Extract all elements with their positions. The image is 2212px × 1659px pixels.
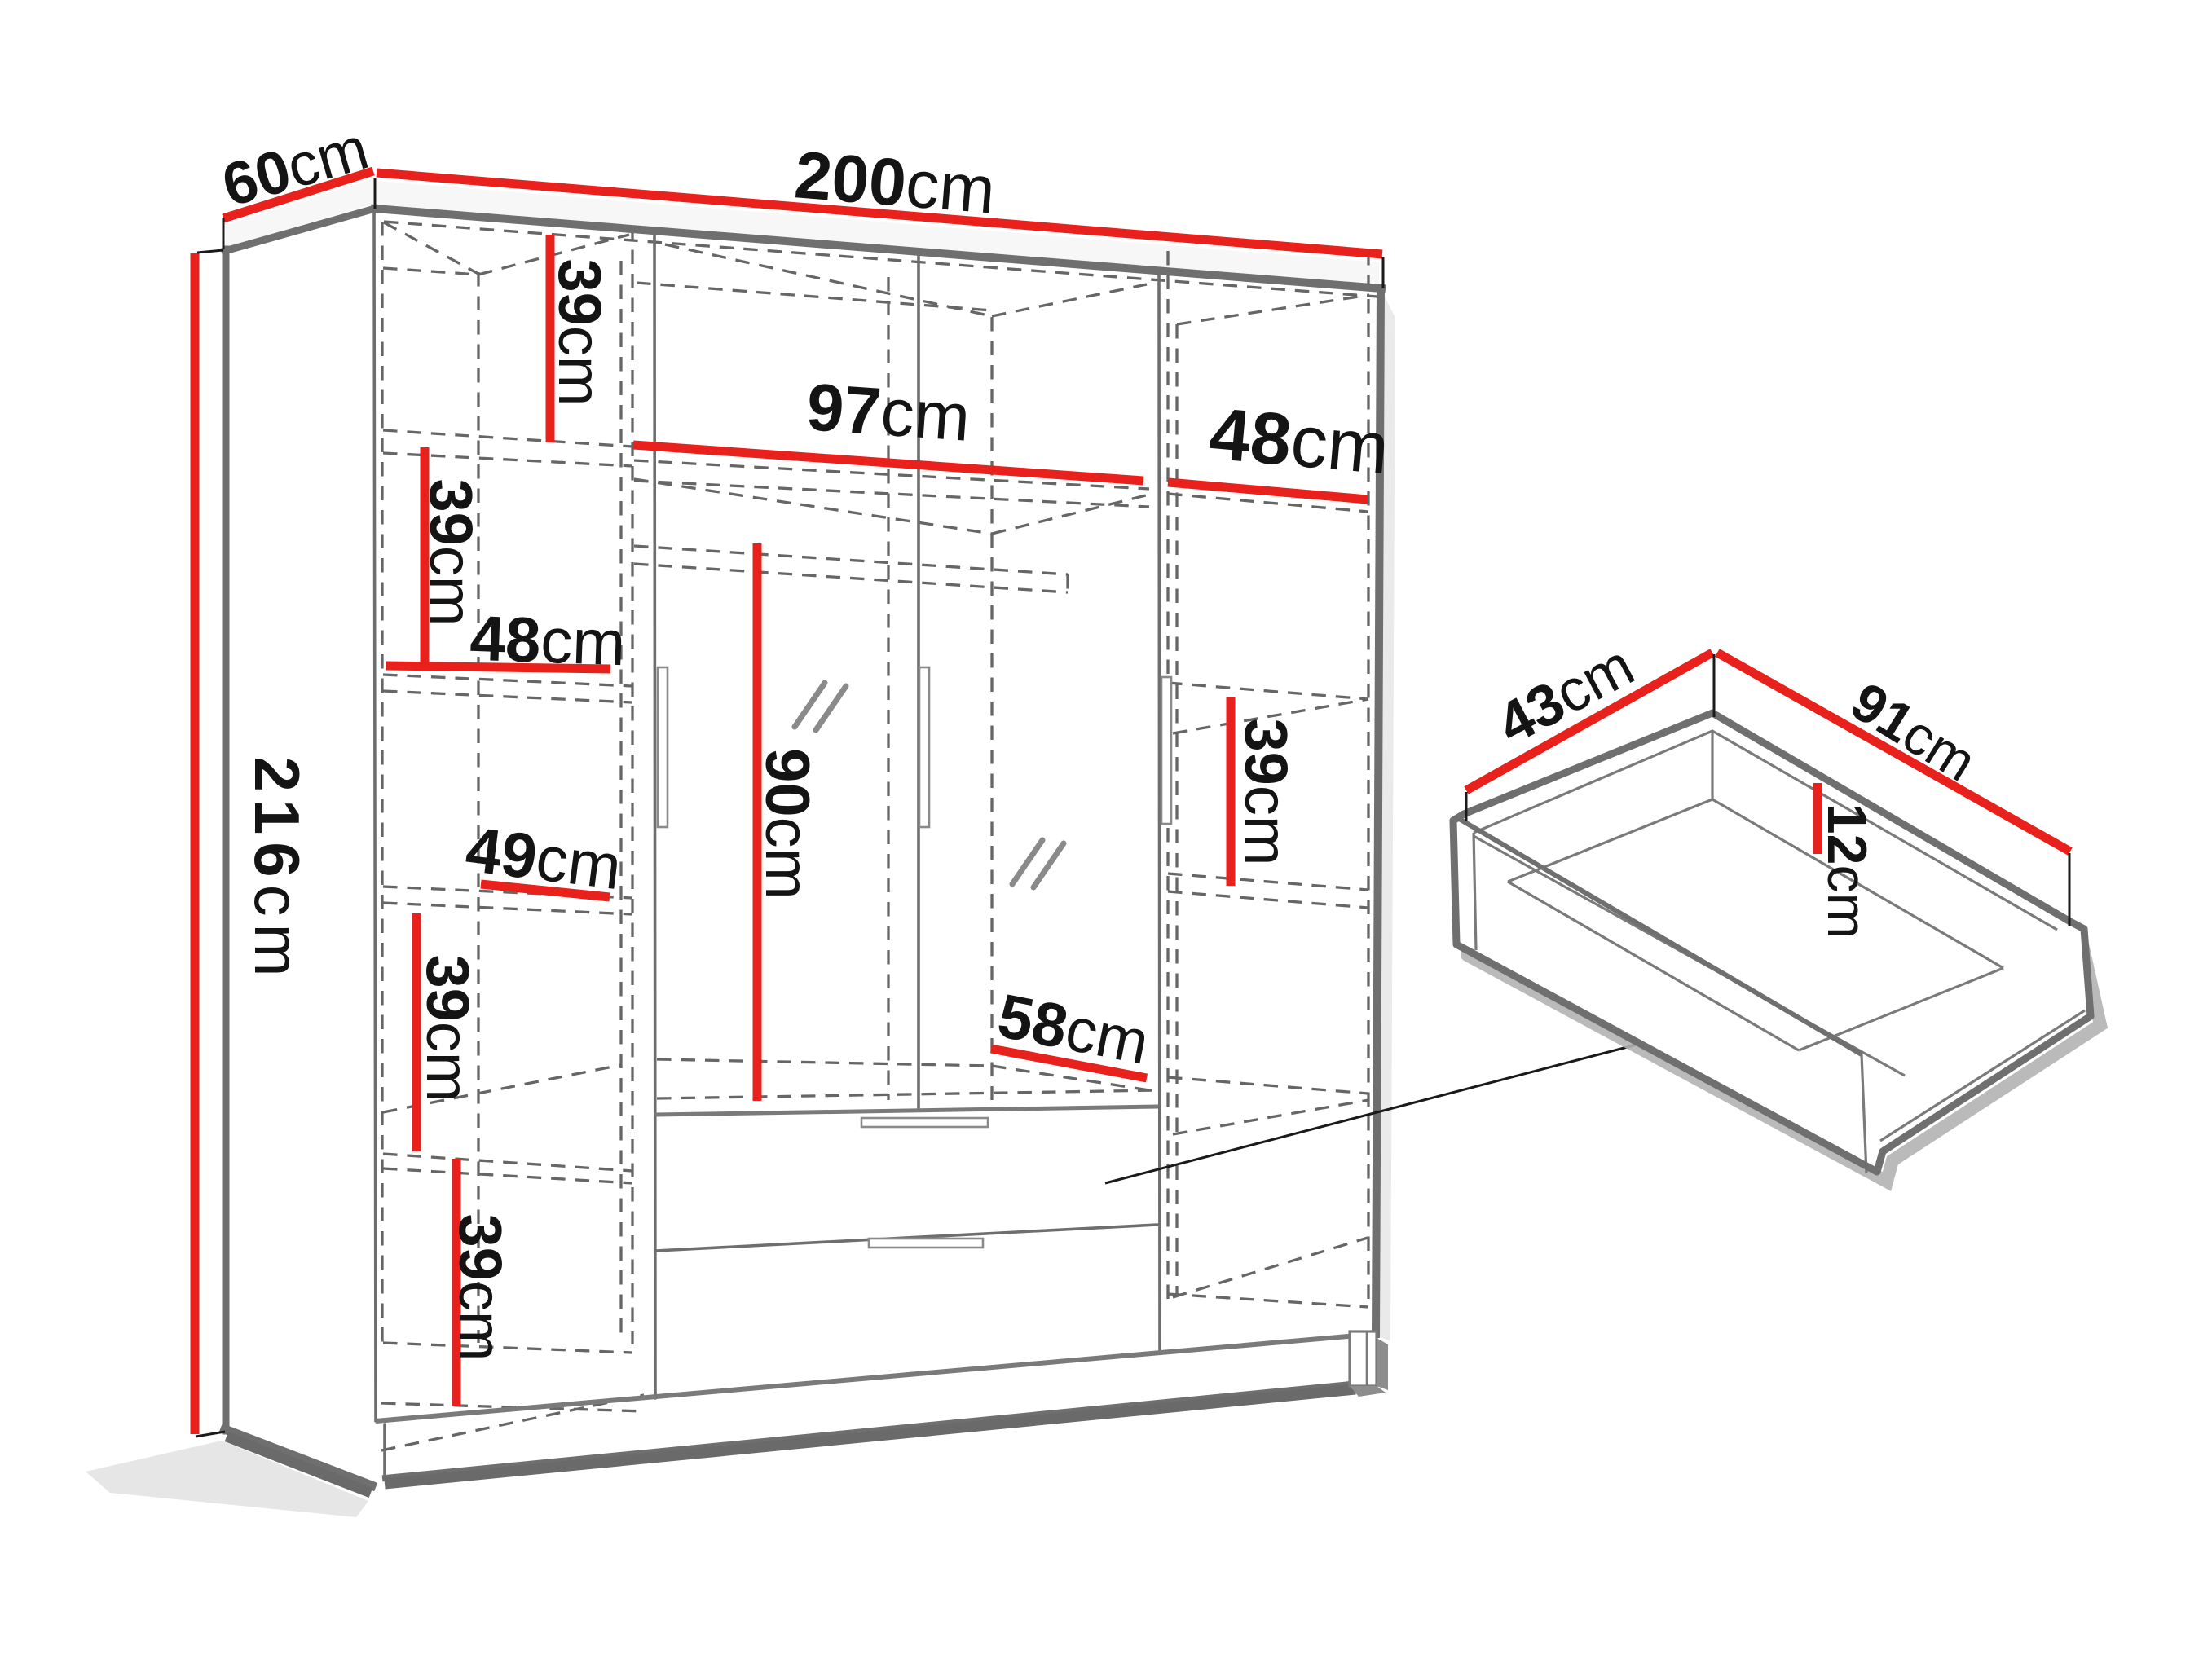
svg-text:216cm: 216cm	[241, 756, 313, 984]
svg-text:39cm: 39cm	[547, 259, 615, 407]
svg-text:48cm: 48cm	[1206, 394, 1392, 491]
svg-text:39cm: 39cm	[447, 1214, 515, 1362]
svg-text:12cm: 12cm	[1816, 803, 1878, 939]
svg-text:90cm: 90cm	[753, 748, 822, 900]
svg-text:97cm: 97cm	[804, 370, 972, 455]
svg-text:48cm: 48cm	[469, 602, 627, 680]
svg-text:39cm: 39cm	[415, 955, 482, 1102]
svg-text:39cm: 39cm	[1233, 719, 1301, 866]
